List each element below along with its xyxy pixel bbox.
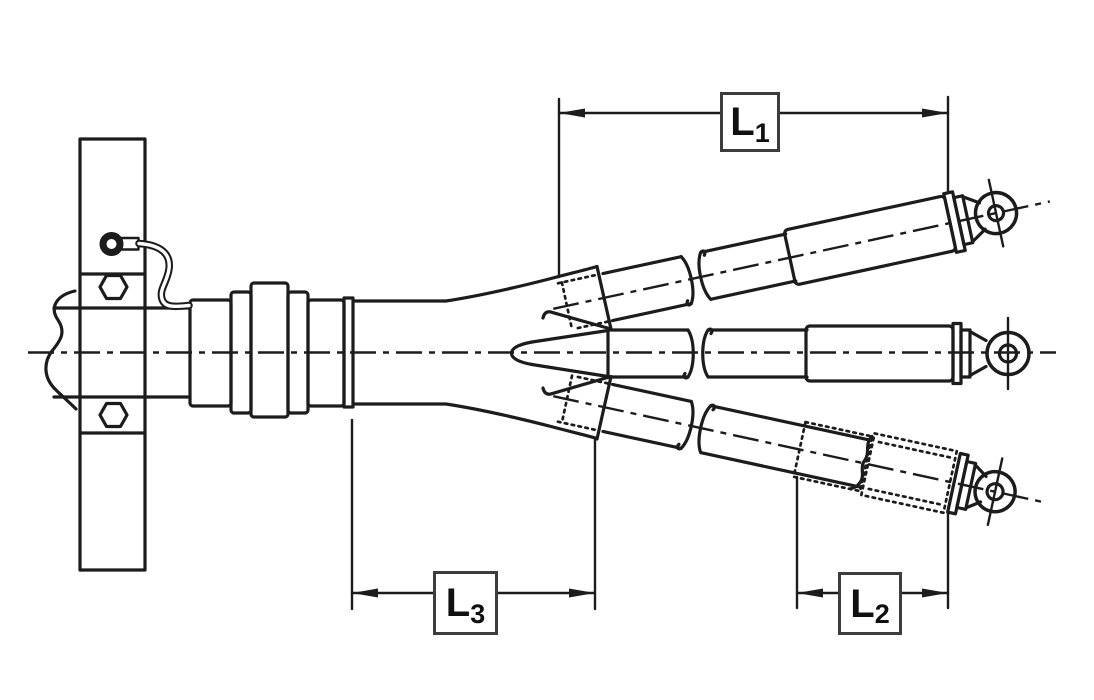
bracket-bar [80, 139, 145, 570]
l2-label-letter: L [850, 584, 874, 624]
l3-arrow-left [352, 589, 378, 598]
hex-bolt-upper [100, 276, 127, 299]
l1-label-letter: L [730, 102, 754, 142]
l1-arrow-left [559, 109, 585, 118]
l2-label-subscript: 2 [875, 601, 890, 628]
core-bottom-hidden-barrel [861, 433, 956, 512]
l3-label-letter: L [446, 583, 470, 623]
gland-center-ring [251, 283, 288, 417]
core-top [546, 168, 1057, 342]
body-flange-ring [344, 298, 353, 407]
technical-drawing-page: L1 L3 L2 [0, 0, 1094, 700]
dimension-label-l2: L2 [838, 572, 902, 635]
l2-arrow-left [797, 589, 823, 598]
l3-arrow-right [569, 589, 595, 598]
cable-termination-diagram [0, 0, 1094, 700]
core-middle-break [684, 330, 693, 378]
l2-arrow-right [922, 589, 948, 598]
mounting-bracket [80, 139, 145, 570]
earth-bolt [103, 236, 120, 253]
dimension-label-l1: L1 [720, 92, 780, 152]
l1-label-subscript: 1 [755, 120, 770, 147]
l1-arrow-right [922, 109, 948, 118]
l3-label-subscript: 3 [470, 601, 485, 628]
core-bottom [546, 363, 1055, 536]
gland-body [190, 283, 353, 417]
core-bottom-zigzag-break [852, 435, 872, 491]
hex-bolt-lower [100, 404, 127, 427]
dimension-label-l3: L3 [433, 571, 498, 635]
